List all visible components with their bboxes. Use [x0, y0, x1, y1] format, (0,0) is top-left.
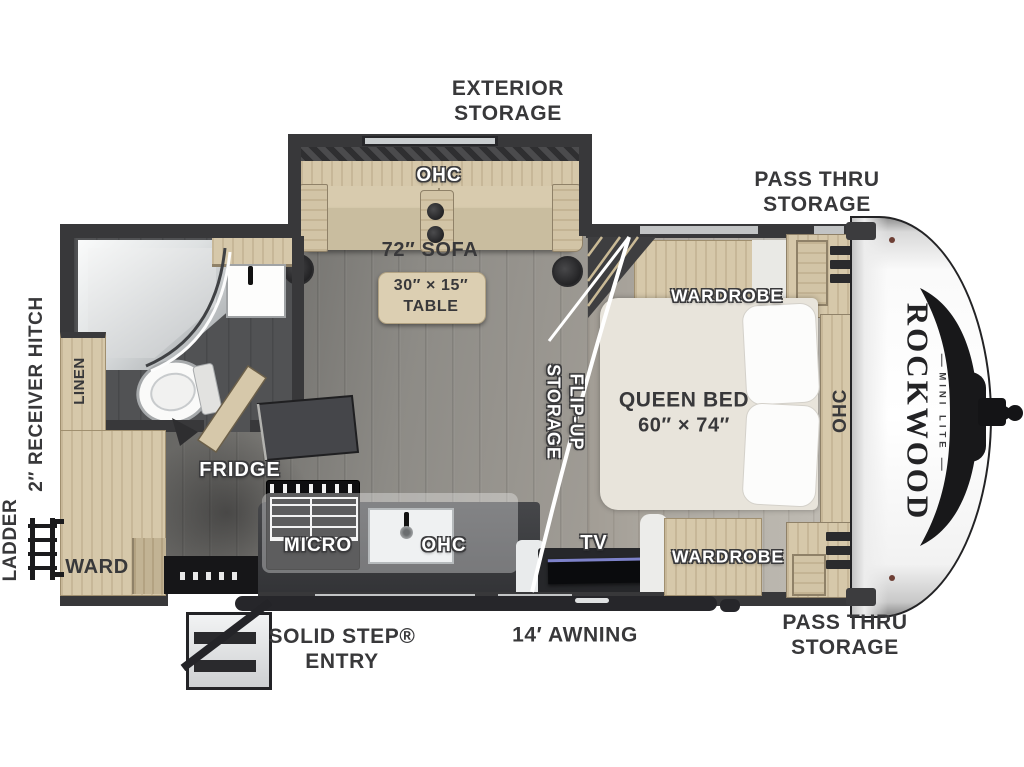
receiver-hitch-label: 2″ RECEIVER HITCH	[26, 296, 48, 492]
exterior-storage-label: EXTERIOR STORAGE	[452, 77, 564, 127]
pillow	[741, 402, 820, 508]
cap-trim-top	[846, 222, 876, 240]
brand-model: MINI LITE	[936, 303, 947, 522]
ohc-shelf-bottom-door	[792, 554, 826, 596]
sofa-ohc-label: OHC	[416, 165, 461, 187]
kitchen-faucet-base	[400, 526, 413, 539]
solid-step-entry-label: SOLID STEP® ENTRY	[269, 625, 416, 675]
flip-up-storage-label: FLIP-UP STORAGE	[543, 364, 588, 460]
bathroom-wall-bottom-b	[250, 420, 304, 432]
queen-bed-label: QUEEN BED 60″ × 74″	[619, 387, 749, 438]
awning-end-cap	[720, 599, 740, 612]
pass-thru-storage-top-label: PASS THRU STORAGE	[754, 168, 879, 218]
awning-bar	[235, 596, 717, 611]
micro-label: MICRO	[284, 535, 352, 557]
sofa-label: 72″ SOFA	[382, 239, 479, 263]
window-top-front	[814, 226, 844, 234]
ladder-label: LADDER	[0, 499, 22, 582]
bathroom-wall-right	[292, 236, 304, 432]
linen-label: LINEN	[71, 357, 89, 405]
step-tread	[194, 660, 256, 672]
slideout-wall-right	[579, 134, 592, 236]
brand-name: ROCKWOOD	[901, 303, 934, 522]
tv-label: TV	[580, 532, 608, 556]
bolster-pillow	[552, 256, 583, 287]
entry-steps	[186, 612, 272, 690]
floorplan-rockwood-mini-lite: MINI LITE ROCKWOOD	[0, 0, 1024, 767]
kitchen-ohc-label: OHC	[421, 535, 466, 557]
pillow	[741, 302, 820, 406]
step-tread	[194, 632, 256, 644]
ladder-icon	[28, 518, 64, 580]
table-label: 30″ × 15″ TABLE	[394, 276, 469, 318]
bathroom-sink	[226, 264, 286, 318]
stove-knobs	[270, 484, 354, 493]
awning-highlight	[575, 598, 609, 603]
cap-trim-bottom	[846, 588, 876, 606]
window-top-bedroom	[640, 226, 758, 234]
wardrobe-top-label: WARDROBE	[671, 286, 783, 307]
fridge-label: FRIDGE	[199, 459, 281, 483]
ward-label: WARD	[65, 556, 129, 580]
cupholder	[427, 203, 444, 220]
ward-step	[132, 538, 166, 594]
wall-top-left	[60, 224, 292, 238]
pass-thru-storage-bottom-label: PASS THRU STORAGE	[782, 611, 907, 661]
vanity-cabinet	[212, 238, 296, 267]
bed-ohc-label: OHC	[830, 389, 852, 433]
bathroom-faucet	[248, 266, 253, 285]
slideout-wall-left	[288, 134, 301, 236]
ohc-shelf-top-door	[796, 240, 828, 306]
awning-label: 14′ AWNING	[512, 624, 638, 649]
entry-mat-treads	[180, 572, 244, 580]
slideout-window-glass	[365, 138, 495, 144]
wardrobe-bottom-label: WARDROBE	[672, 547, 784, 568]
